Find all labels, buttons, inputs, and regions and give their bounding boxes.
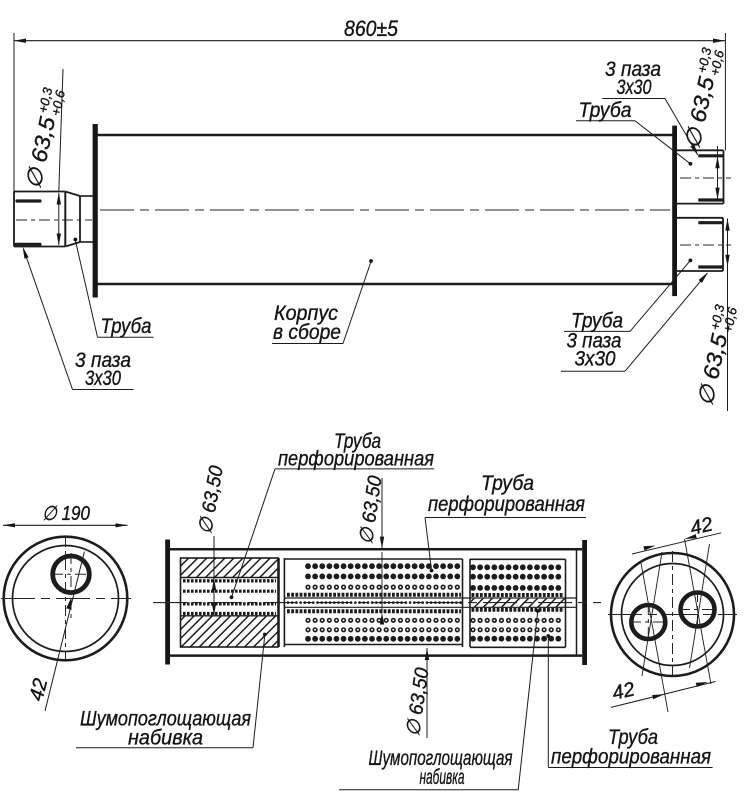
svg-text:перфорированная: перфорированная <box>551 746 711 769</box>
svg-text:набивка: набивка <box>420 766 465 789</box>
svg-text:860±5: 860±5 <box>344 16 399 41</box>
svg-text:Труба: Труба <box>481 472 534 495</box>
svg-text:Труба: Труба <box>579 99 632 122</box>
svg-text:набивка: набивка <box>128 727 203 750</box>
svg-text:∅ 190: ∅ 190 <box>42 503 90 525</box>
svg-text:перфорированная: перфорированная <box>428 493 585 516</box>
svg-text:Труба: Труба <box>101 315 152 338</box>
svg-text:3х30: 3х30 <box>617 76 652 99</box>
svg-text:перфорированная: перфорированная <box>278 448 434 471</box>
svg-text:в сборе: в сборе <box>273 321 341 344</box>
svg-text:3х30: 3х30 <box>85 367 121 390</box>
svg-text:3х30: 3х30 <box>575 348 616 371</box>
